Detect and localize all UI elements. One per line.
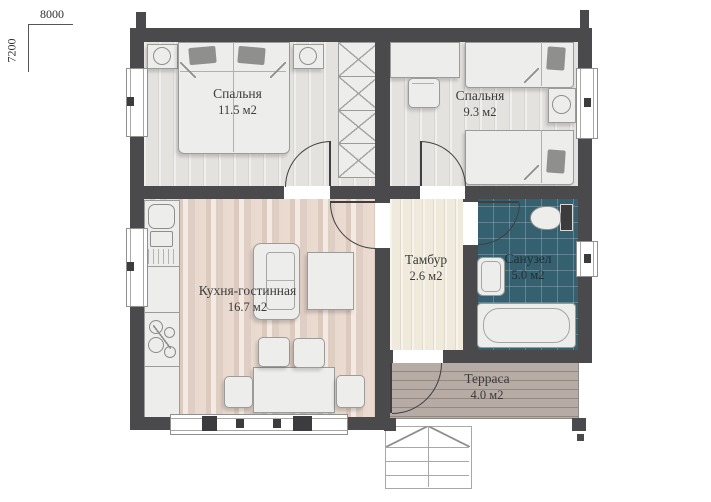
wardrobe-section: [339, 77, 378, 111]
stove: [144, 312, 180, 368]
dimension-width-label: 8000: [30, 7, 74, 22]
window-mullion: [127, 97, 134, 106]
wall-bottom-bathroom: [463, 350, 592, 363]
bed-divider: [541, 42, 542, 86]
entry-door-opening: [393, 350, 443, 363]
wardrobe-section: [339, 43, 378, 77]
window-mullion: [127, 262, 134, 271]
toilet-tank: [560, 204, 573, 231]
bed-divider: [541, 130, 542, 183]
corner-log-top-left: [136, 12, 146, 28]
kitchen-sink-unit: [144, 200, 180, 268]
room-name: Терраса: [428, 371, 546, 388]
terrace-post-right-foot: [577, 434, 584, 441]
lamp-icon: [299, 47, 317, 65]
room-name: Кухня-гостинная: [175, 283, 320, 300]
lamp-icon: [552, 95, 571, 114]
bathroom-door-opening: [463, 202, 478, 245]
sofa-cushion-divider: [267, 280, 294, 281]
dimension-height-label: 7200: [5, 31, 20, 71]
terrace-post-right: [572, 418, 586, 431]
kitchen-door-opening: [375, 203, 390, 248]
dining-chair: [258, 337, 290, 367]
room-area: 9.3 м2: [410, 105, 550, 121]
room-name: Спальня: [165, 86, 310, 103]
wardrobe-section: [339, 111, 378, 145]
wall-top: [130, 28, 592, 42]
window-mullion: [236, 419, 244, 428]
terrace-label: Терраса 4.0 м2: [428, 371, 546, 404]
sink-basin: [148, 204, 175, 229]
corner-log-top-right: [580, 10, 589, 28]
bedroom1-door-opening: [284, 186, 330, 199]
window-kitchen-bottom: [170, 414, 348, 435]
room-name: Тамбур: [386, 252, 466, 269]
kitchen-counter: [144, 366, 180, 419]
dining-chair: [336, 375, 365, 408]
floor-plan: 8000 7200: [0, 0, 711, 502]
pillow: [237, 46, 265, 65]
chair-back-line: [412, 83, 434, 84]
dimension-height-line: [28, 24, 29, 72]
room-area: 2.6 м2: [386, 269, 466, 285]
bathtub: [477, 303, 576, 348]
wall-between-bedrooms: [375, 42, 390, 186]
wall-horizontal-middle: [144, 186, 578, 199]
dining-chair: [293, 338, 325, 368]
bathroom-label: Санузел 5.0 м2: [478, 251, 578, 284]
blanket-fold: [524, 165, 539, 180]
room-area: 11.5 м2: [165, 103, 310, 119]
pillow: [546, 149, 566, 173]
bedroom2-label: Спальня 9.3 м2: [410, 88, 550, 121]
dining-chair: [224, 376, 253, 408]
bedroom1-label: Спальня 11.5 м2: [165, 86, 310, 119]
steps-gable-right: [428, 426, 470, 447]
bedroom2-door-opening: [420, 186, 465, 199]
lamp-icon: [153, 47, 171, 65]
kitchen-label: Кухня-гостинная 16.7 м2: [175, 283, 320, 316]
window-mullion-post: [202, 416, 217, 431]
dimension-width-line: [28, 24, 73, 25]
blanket-fold: [270, 62, 286, 78]
window-mullion: [584, 98, 591, 107]
terrace-post-left: [384, 418, 396, 431]
room-area: 4.0 м2: [428, 388, 546, 404]
pillow: [546, 46, 566, 70]
wardrobe-section: [339, 144, 378, 177]
desk: [390, 42, 460, 78]
drainer-hatch: [148, 249, 174, 264]
room-name: Спальня: [410, 88, 550, 105]
vestibule-label: Тамбур 2.6 м2: [386, 252, 466, 285]
window-mullion: [584, 254, 591, 263]
room-area: 16.7 м2: [175, 300, 320, 316]
room-area: 5.0 м2: [478, 268, 578, 284]
window-mullion-post: [293, 416, 312, 431]
toilet-bowl: [530, 206, 561, 230]
blanket-fold: [524, 68, 539, 83]
dining-table: [253, 367, 335, 413]
window-mullion: [273, 419, 281, 428]
steps-center-line: [428, 426, 429, 487]
wardrobe: [338, 42, 379, 178]
pillow: [188, 46, 216, 65]
cutting-board: [150, 231, 173, 247]
room-name: Санузел: [478, 251, 578, 268]
